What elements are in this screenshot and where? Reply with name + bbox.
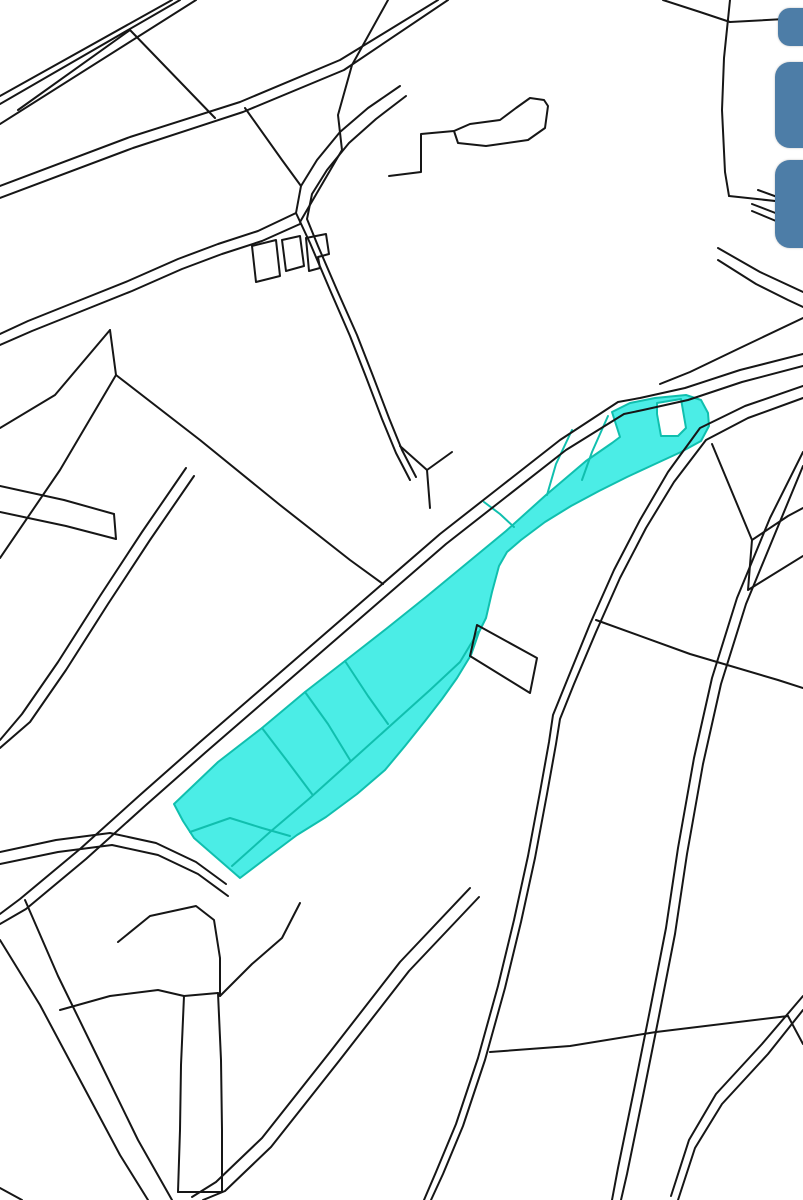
parcel-triangle-left bbox=[18, 30, 215, 118]
cadastral-map bbox=[0, 0, 803, 1200]
parcel-zig-west-2 bbox=[110, 330, 116, 375]
parcel-line-mideast bbox=[596, 620, 803, 688]
road-edge-sw-diag-1 bbox=[192, 888, 470, 1197]
parcel-line-nw bbox=[0, 0, 196, 124]
road-edge-fareast-2 bbox=[621, 466, 803, 1200]
road-edge-sinuous-1 bbox=[296, 86, 410, 480]
parcel-fan-sw-2 bbox=[0, 940, 148, 1200]
parcel-line-west-long bbox=[116, 375, 383, 584]
parcel-line-topright-vertical bbox=[722, 0, 730, 196]
map-tool-button-bottom[interactable] bbox=[775, 160, 803, 248]
road-cap-farwest bbox=[114, 514, 116, 539]
parcel-line-right-2 bbox=[718, 260, 803, 307]
map-tool-button-middle[interactable] bbox=[775, 62, 803, 148]
road-edge-farwest-1 bbox=[0, 486, 114, 514]
parcel-fan-sw-1 bbox=[25, 900, 172, 1200]
road-edge-center-west-1 bbox=[0, 213, 296, 334]
parcel-hook bbox=[454, 98, 548, 146]
road-edge-se-2 bbox=[678, 1010, 803, 1200]
parcel-line-topcenter bbox=[300, 0, 388, 222]
parcel-v-right-2 bbox=[748, 540, 803, 590]
parcel-zig-west-3 bbox=[0, 375, 116, 558]
road-edge-farwest-2 bbox=[0, 512, 116, 539]
parcel-blob-sw bbox=[118, 906, 220, 996]
parcel-branch-south bbox=[490, 1016, 788, 1052]
parcel-blob-sw-2 bbox=[220, 903, 300, 996]
building-outline-2 bbox=[282, 236, 304, 271]
parcel-strip-top bbox=[184, 993, 218, 996]
road-edge-sw-1 bbox=[0, 833, 226, 884]
road-edge-fareast-1 bbox=[612, 452, 803, 1200]
road-edge-east-2 bbox=[431, 398, 803, 1200]
map-viewport[interactable] bbox=[0, 0, 803, 1200]
parcel-quad-small bbox=[470, 625, 537, 693]
parcel-line-right-3 bbox=[660, 318, 803, 384]
parcel-line-topcenter-2 bbox=[245, 108, 301, 186]
parcel-v-right bbox=[712, 444, 803, 540]
parcel-small-band-top-2 bbox=[427, 452, 452, 470]
parcel-corner-sw bbox=[0, 1188, 22, 1200]
parcel-line-hook-tail bbox=[389, 131, 454, 176]
parcel-blob-sw-3 bbox=[60, 990, 184, 1010]
parcel-strip-left bbox=[178, 996, 184, 1192]
highlighted-parcel-group[interactable] bbox=[174, 395, 709, 878]
parcel-subdivision-line-4 bbox=[484, 502, 514, 527]
parcel-line-topright-h2 bbox=[663, 0, 730, 22]
parcel-strip-right bbox=[218, 993, 222, 1192]
road-edge-nw-2 bbox=[0, 0, 180, 104]
road-edge-se-1 bbox=[671, 996, 803, 1196]
road-edge-center-west-2 bbox=[0, 224, 300, 345]
building-outline-1 bbox=[252, 240, 280, 282]
map-tool-button-top[interactable] bbox=[778, 8, 803, 46]
